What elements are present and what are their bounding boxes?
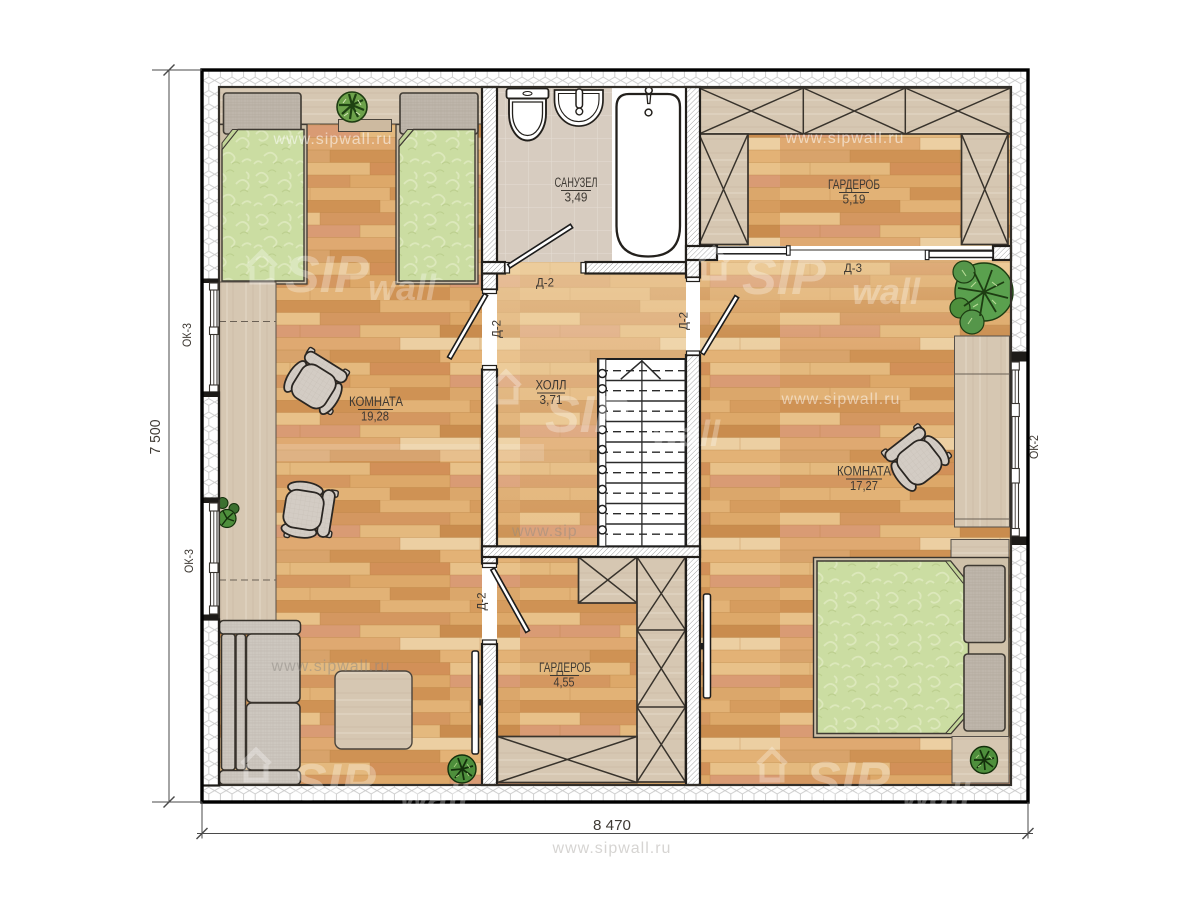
svg-text:КОМНАТА: КОМНАТА xyxy=(349,394,403,409)
svg-text:ОК-3: ОК-3 xyxy=(184,549,196,573)
svg-text:Д-2: Д-2 xyxy=(492,320,504,338)
svg-text:4,55: 4,55 xyxy=(554,675,575,690)
svg-text:SIP: SIP xyxy=(292,754,376,812)
svg-text:ГАРДЕРОБ: ГАРДЕРОБ xyxy=(828,177,880,192)
svg-text:КОМНАТА: КОМНАТА xyxy=(837,464,891,479)
svg-text:www.sipwall.ru: www.sipwall.ru xyxy=(273,131,393,148)
svg-text:ОК-3: ОК-3 xyxy=(182,323,194,347)
svg-text:SIP: SIP xyxy=(742,248,826,306)
svg-text:17,27: 17,27 xyxy=(850,478,878,493)
svg-text:SIP: SIP xyxy=(806,752,890,810)
svg-text:wall: wall xyxy=(902,775,971,816)
svg-text:19,28: 19,28 xyxy=(361,409,389,424)
svg-text:5,19: 5,19 xyxy=(843,192,866,207)
svg-text:wall: wall xyxy=(400,777,469,818)
svg-text:wall: wall xyxy=(368,267,437,308)
svg-text:ГАРДЕРОБ: ГАРДЕРОБ xyxy=(539,660,591,675)
svg-text:www.sip: www.sip xyxy=(511,523,578,540)
svg-text:Д-2: Д-2 xyxy=(477,593,489,611)
svg-text:8 470: 8 470 xyxy=(593,818,631,834)
svg-text:wall: wall xyxy=(852,271,921,312)
svg-text:www.sipwall.ru: www.sipwall.ru xyxy=(271,658,391,675)
svg-text:SIP: SIP xyxy=(285,246,369,304)
svg-text:ОК-2: ОК-2 xyxy=(1029,435,1041,459)
svg-text:ХОЛЛ: ХОЛЛ xyxy=(536,378,567,393)
svg-text:www.sipwall.ru: www.sipwall.ru xyxy=(785,130,905,147)
svg-text:3,49: 3,49 xyxy=(565,190,588,205)
svg-text:www.sipwall.ru: www.sipwall.ru xyxy=(781,391,901,408)
svg-text:Д-2: Д-2 xyxy=(536,278,554,290)
svg-text:7 500: 7 500 xyxy=(148,420,164,455)
svg-text:Д-3: Д-3 xyxy=(844,263,862,275)
svg-text:3,71: 3,71 xyxy=(540,392,563,407)
svg-text:wall: wall xyxy=(652,413,721,454)
svg-text:Д-2: Д-2 xyxy=(679,312,691,330)
svg-text:САНУЗЕЛ: САНУЗЕЛ xyxy=(555,175,598,190)
svg-text:www.sipwall.ru: www.sipwall.ru xyxy=(552,840,672,857)
